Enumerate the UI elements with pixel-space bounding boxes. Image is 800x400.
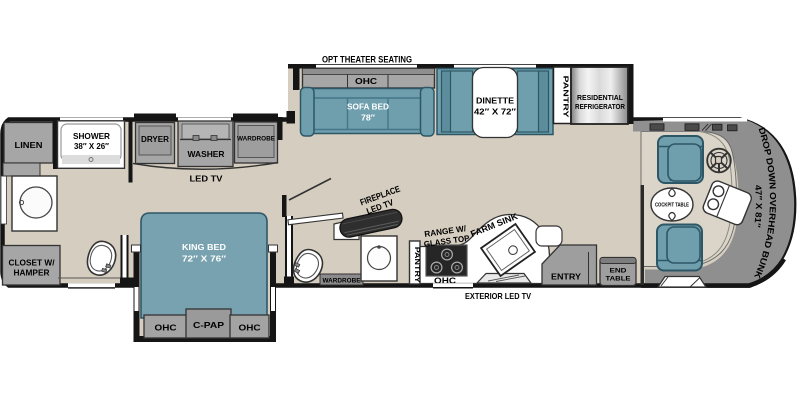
svg-text:HAMPER: HAMPER [14, 269, 50, 278]
svg-text:72″ X 76″: 72″ X 76″ [182, 254, 226, 264]
svg-text:END: END [610, 268, 627, 275]
svg-text:WASHER: WASHER [188, 150, 225, 159]
svg-text:SHOWER: SHOWER [73, 132, 110, 141]
svg-text:DINETTE: DINETTE [476, 96, 514, 106]
svg-text:COCKPIT TABLE: COCKPIT TABLE [655, 203, 689, 209]
svg-text:OPT THEATER SEATING: OPT THEATER SEATING [322, 55, 412, 65]
svg-text:REFRIGERATOR: REFRIGERATOR [575, 102, 626, 111]
svg-text:WARDROBE: WARDROBE [237, 136, 276, 143]
svg-text:78″: 78″ [361, 113, 375, 123]
svg-text:OHC: OHC [355, 76, 377, 86]
svg-text:OHC: OHC [239, 323, 261, 333]
svg-text:KING BED: KING BED [182, 242, 226, 252]
svg-text:LED TV: LED TV [190, 174, 223, 184]
svg-text:WARDROBE: WARDROBE [323, 278, 361, 285]
svg-text:PANTRY: PANTRY [413, 247, 420, 283]
svg-text:DRYER: DRYER [141, 135, 169, 144]
svg-text:38″ X 26″: 38″ X 26″ [74, 142, 109, 151]
svg-text:C-PAP: C-PAP [193, 320, 225, 330]
svg-text:EXTERIOR LED TV: EXTERIOR LED TV [465, 291, 531, 301]
svg-text:TABLE: TABLE [606, 276, 632, 283]
svg-text:OHC: OHC [155, 323, 177, 333]
svg-text:SOFA BED: SOFA BED [347, 102, 389, 112]
svg-text:RESIDENTIAL: RESIDENTIAL [577, 93, 624, 102]
svg-text:PANTRY: PANTRY [562, 76, 571, 118]
svg-text:CLOSET W/: CLOSET W/ [9, 259, 56, 268]
svg-text:42″ X 72″: 42″ X 72″ [474, 107, 516, 117]
svg-text:LINEN: LINEN [15, 140, 43, 150]
svg-text:ENTRY: ENTRY [551, 272, 581, 282]
